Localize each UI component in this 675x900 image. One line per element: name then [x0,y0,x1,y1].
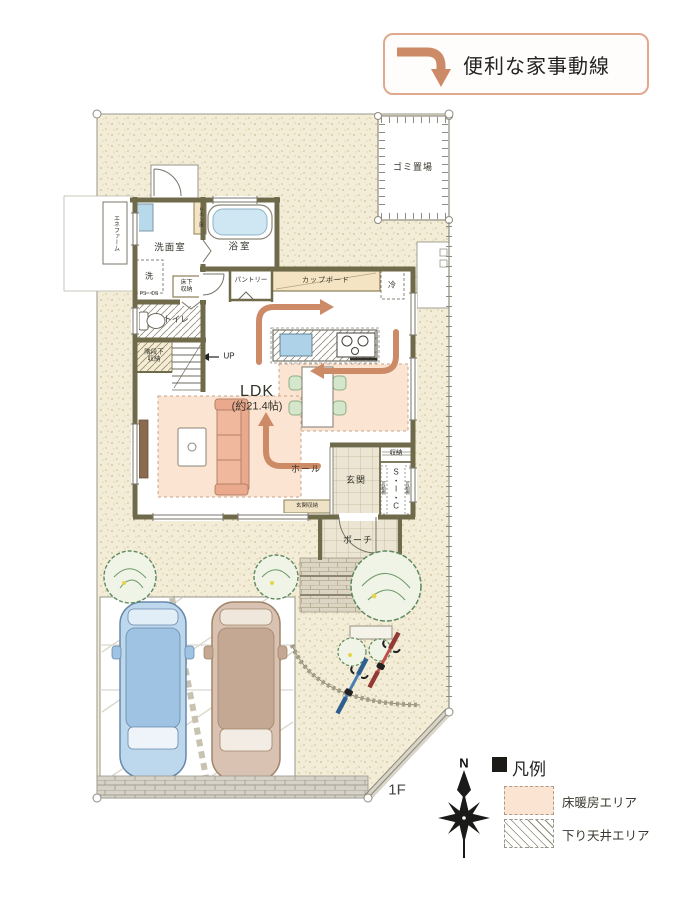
tv-board [139,420,148,478]
sofa [215,399,249,495]
label-entrance-storage: 玄関収納 [296,503,318,509]
floor-plan-page: 便利な家事動線 ゴミ置場 エネファーム リネン庫 洗面室 浴室 洗 PS・DS … [0,0,675,900]
legend-title-square [492,757,507,772]
label-movable-shelf-left: 可動棚 [381,481,386,495]
label-movable-shelf-right: 可動棚 [405,481,410,495]
sidewalk [97,776,368,798]
tree-2 [254,555,298,599]
flow-note-text: 便利な家事動線 [463,50,610,79]
legend-item-floor-heating: 床暖房エリア [562,792,637,811]
label-floor: 1F [388,781,406,798]
label-porch: ポーチ [343,535,373,545]
label-storage: 収納 [390,449,403,456]
label-entrance: 玄関 [346,475,366,485]
enefarm-area [64,196,133,291]
label-pantry: パントリー [235,276,268,283]
label-washroom: 洗面室 [154,244,186,255]
utility-niche [417,242,449,308]
legend-swatch-lowered-ceiling [504,819,554,848]
tree-1 [104,551,156,603]
label-hall: ホール [291,464,321,474]
label-bath: 浴室 [228,243,251,254]
bathtub [208,205,272,239]
legend-title: 凡例 [512,755,546,780]
label-underfloor-storage: 床下収納 [179,280,194,294]
label-garbage: ゴミ置場 [393,162,433,172]
label-toilet: トイレ [163,315,189,325]
label-fridge: 冷 [388,280,396,289]
car-tan [204,602,287,780]
label-up: UP [223,351,234,360]
label-washer: 洗 [145,271,153,280]
compass-north-label: N [459,757,468,772]
kitchen-island [271,328,379,363]
label-stair-storage: 階段下収納 [144,349,165,364]
toilet-fixture [139,312,165,330]
label-sic: S・I・C [391,468,400,511]
label-ldk: LDK [240,383,274,401]
car-blue [112,602,194,778]
compass-rose [438,770,490,858]
coffee-table [178,428,206,466]
label-linen: リネン庫 [197,207,203,227]
legend-swatch-floor-heating [504,786,554,815]
flow-arrow-icon [385,36,463,92]
legend-item-lowered-ceiling: 下り天井エリア [562,825,650,844]
label-ldk-size: (約21.4帖) [232,401,283,414]
label-ps-ds: PS・DS [140,292,159,298]
floor-plan-drawing [0,0,675,900]
washbasin [137,204,153,231]
label-enefarm: エネファーム [112,215,119,251]
parking-lot [100,597,295,780]
bush-1 [338,638,366,666]
flow-note-box: 便利な家事動線 [383,33,649,95]
label-cupboard: カップボード [302,277,350,285]
tree-3 [351,551,421,621]
